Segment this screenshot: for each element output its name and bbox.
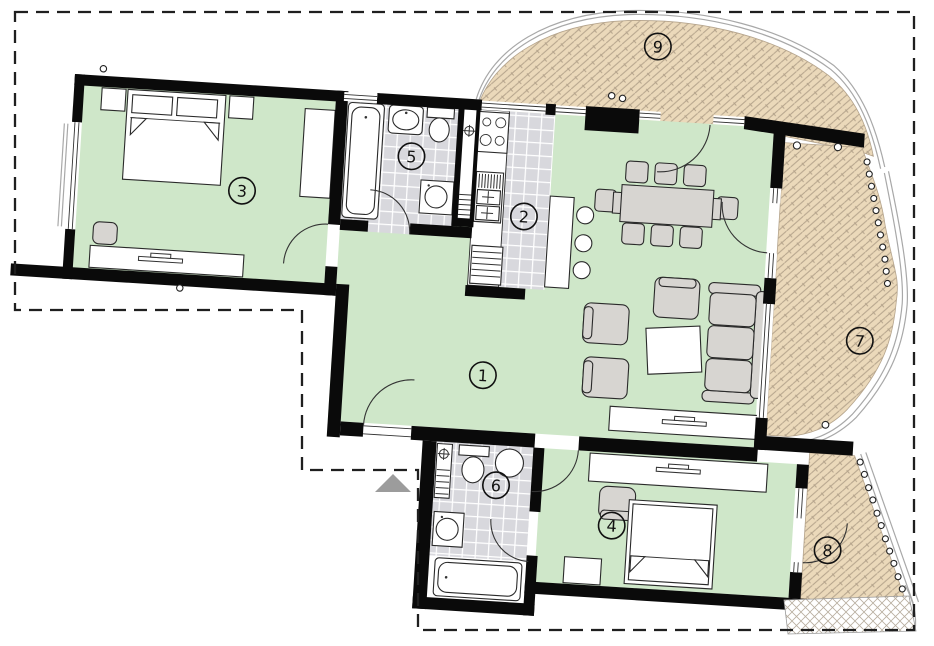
- coffee-table: [646, 326, 702, 374]
- armchair: [582, 357, 629, 400]
- dining-chair: [654, 163, 677, 185]
- window: [791, 562, 802, 573]
- bathtub-icon: [342, 102, 385, 219]
- kitchen-sink-icon: [474, 171, 504, 223]
- bar-stool: [573, 261, 591, 279]
- double-bed: [122, 89, 225, 185]
- terrace-7-8-divider-wall: [754, 435, 854, 455]
- wardrobe: [300, 109, 335, 199]
- stove-icon: [477, 111, 509, 153]
- building: 1 2 3 4 5 6 7 8 9: [0, 0, 934, 640]
- floor-plan-drawing: 1 2 3 4 5 6 7 8 9: [0, 0, 934, 646]
- bar-counter: [545, 196, 575, 288]
- window: [639, 111, 661, 121]
- svg-text:1: 1: [477, 366, 488, 386]
- washbasin-icon: [432, 511, 464, 547]
- washing-machine-icon: [419, 180, 454, 215]
- floor-plan: 1 2 3 4 5 6 7 8 9: [0, 0, 934, 646]
- window: [766, 253, 778, 279]
- sink-icon: [388, 105, 424, 135]
- vent-shaft: [434, 443, 452, 498]
- pillow: [132, 95, 173, 115]
- dining-table: [620, 185, 714, 228]
- svg-text:8: 8: [822, 541, 833, 561]
- window: [555, 105, 586, 116]
- window-sill: [58, 123, 68, 226]
- dining-chair: [650, 225, 673, 247]
- bar-stool: [576, 206, 594, 224]
- nightstand: [229, 96, 254, 119]
- dining-chair: [625, 161, 648, 183]
- dining-chair: [679, 226, 702, 248]
- window: [795, 488, 807, 519]
- window: [770, 188, 781, 204]
- bathtub-icon: [433, 558, 522, 601]
- svg-text:9: 9: [652, 37, 663, 57]
- svg-text:7: 7: [854, 332, 865, 352]
- pillow: [177, 97, 218, 117]
- chair: [92, 221, 117, 244]
- dining-chair: [621, 223, 644, 245]
- nightstand: [101, 88, 126, 111]
- lower-terrace-hatch: [784, 596, 916, 634]
- sofa-cushion: [706, 325, 754, 360]
- terrace-8-floor: [800, 453, 916, 605]
- nightstand: [563, 557, 602, 585]
- armchair: [653, 277, 700, 320]
- entrance-arrow-icon: [375, 474, 411, 492]
- wall-pier: [584, 106, 639, 133]
- dining-chair: [683, 164, 706, 186]
- armchair: [582, 302, 629, 345]
- svg-text:6: 6: [490, 476, 501, 496]
- terrace-7-floor: [766, 143, 907, 443]
- sofa-cushion: [704, 358, 752, 393]
- svg-text:5: 5: [406, 147, 417, 167]
- svg-text:4: 4: [606, 516, 617, 536]
- radiator-icon: [470, 245, 503, 285]
- entry-threshold: [363, 426, 411, 437]
- sofa-cushion: [709, 292, 757, 327]
- bar-stool: [574, 234, 592, 252]
- svg-text:2: 2: [518, 207, 529, 227]
- double-bed: [624, 500, 717, 589]
- svg-text:3: 3: [236, 181, 247, 201]
